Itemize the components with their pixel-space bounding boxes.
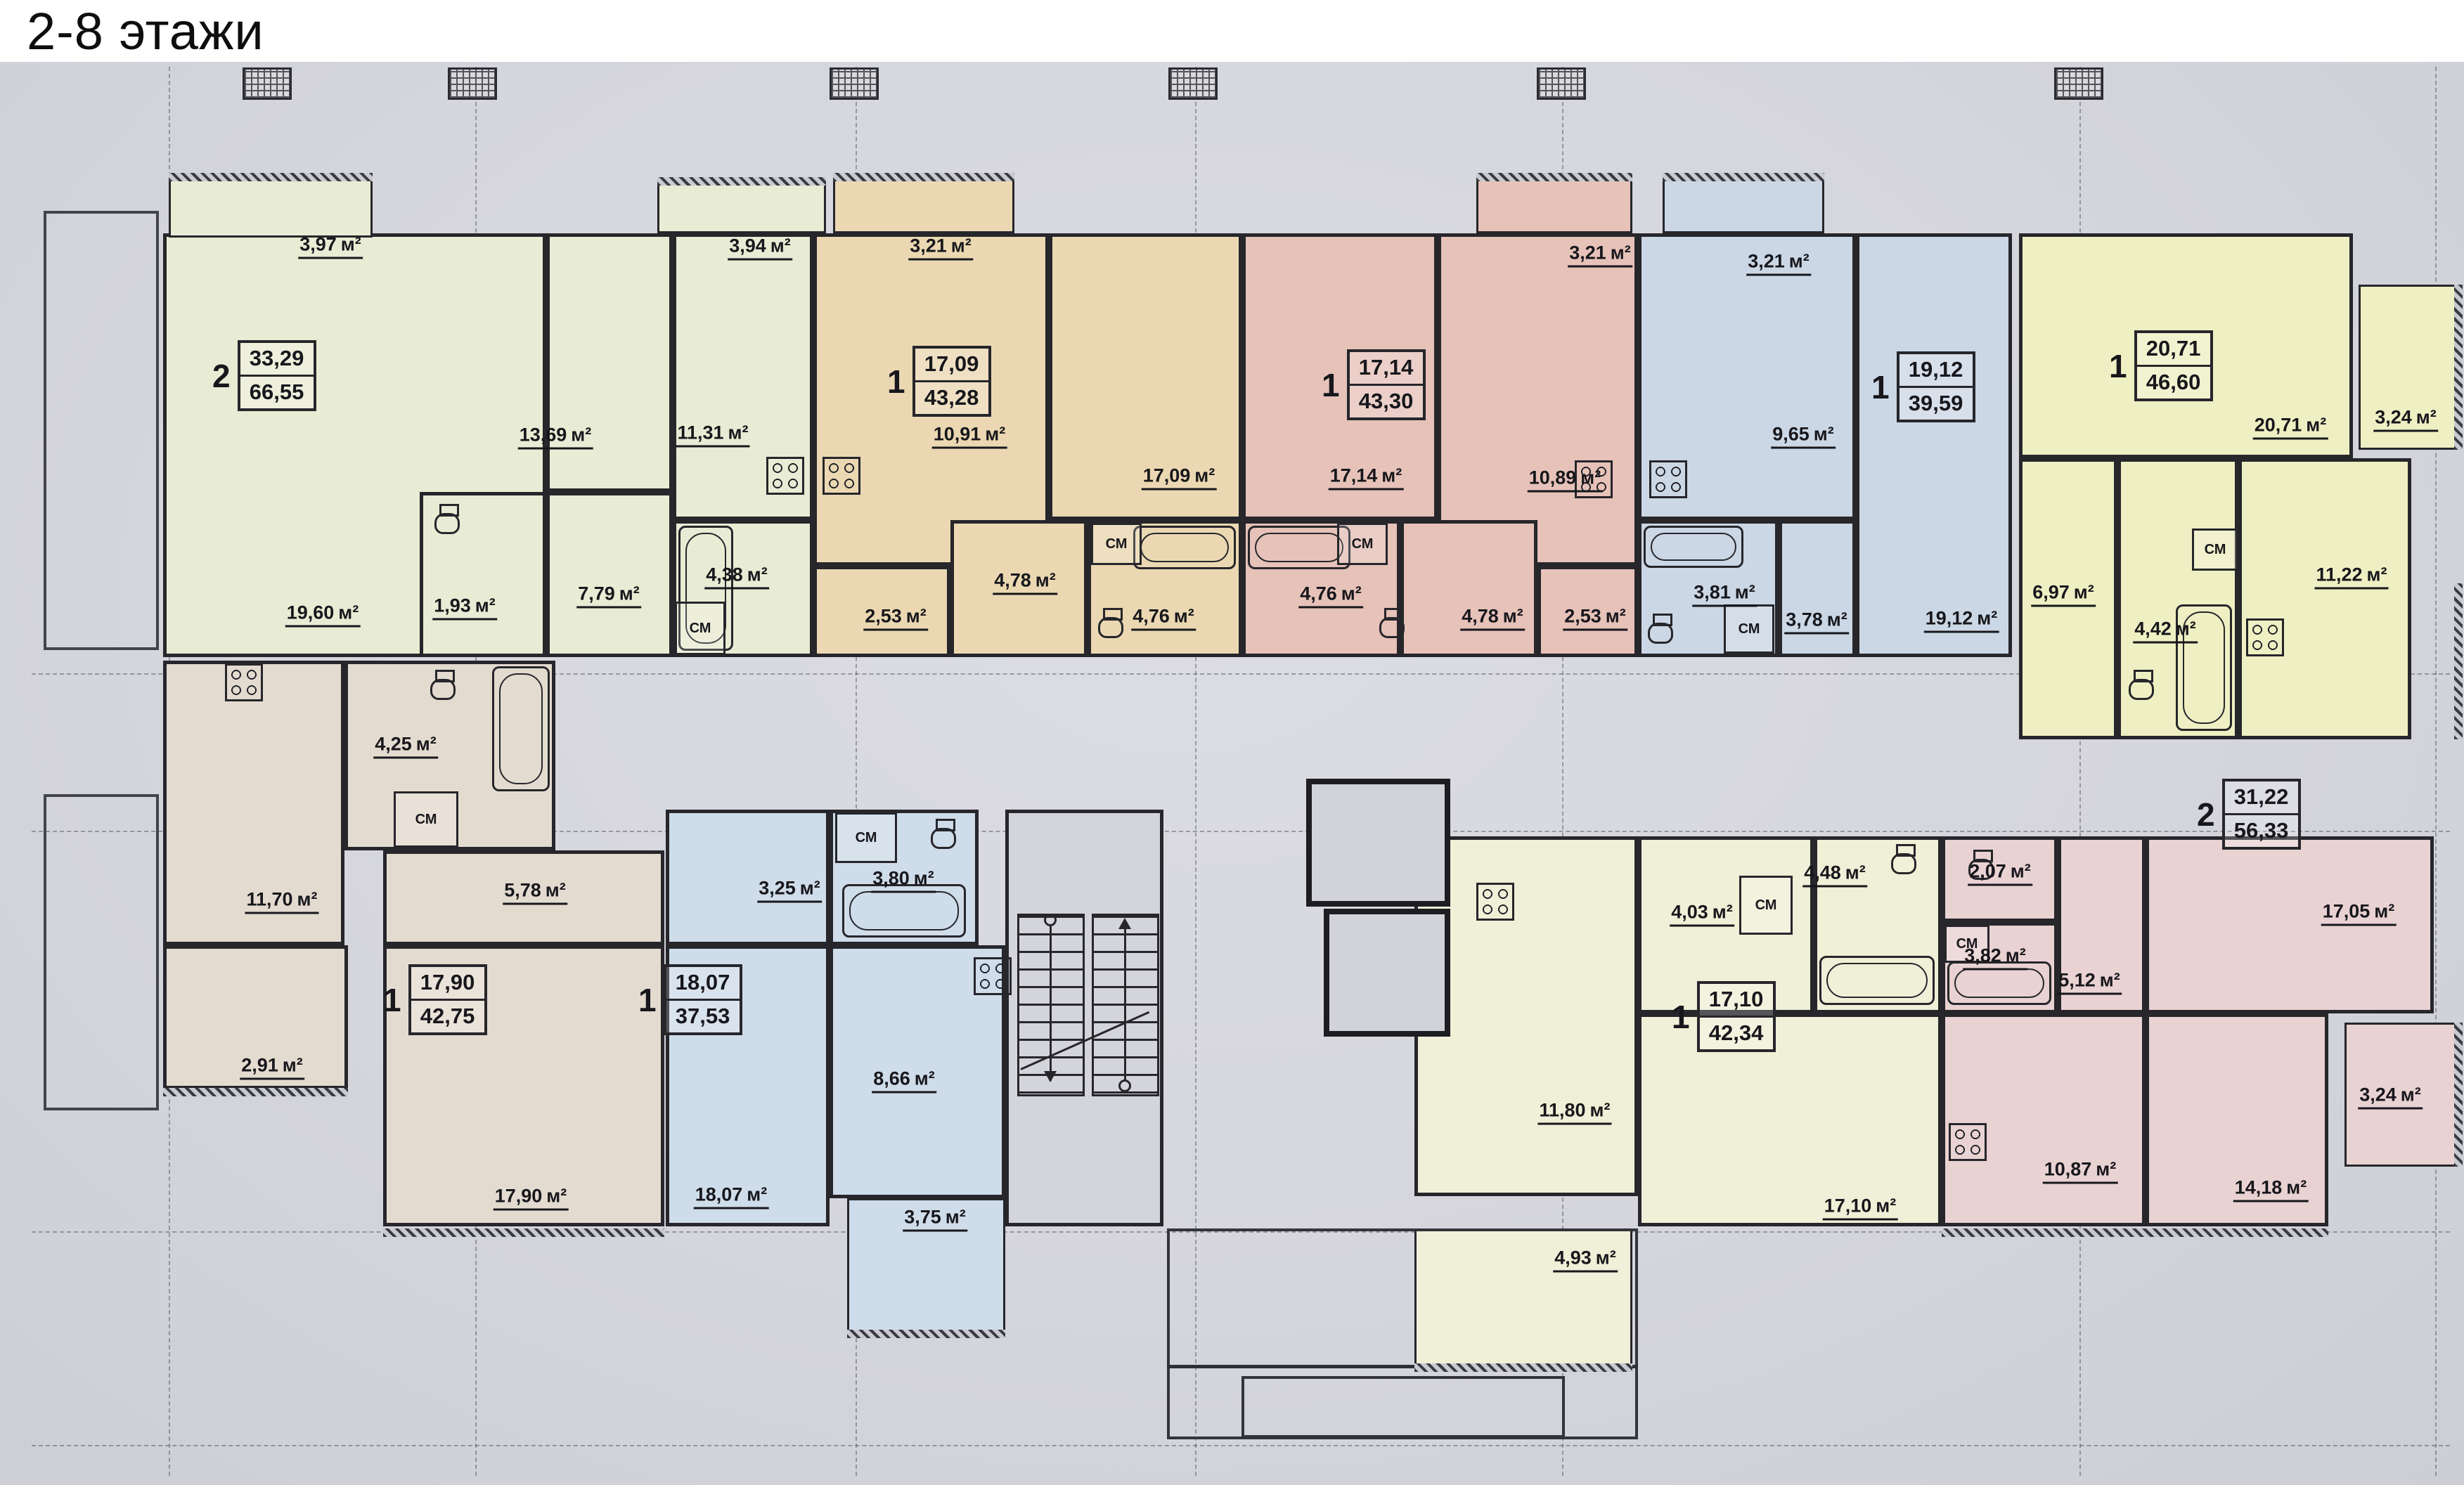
bottom-sill-hatch: [163, 1088, 348, 1096]
area-label: 13,69м²: [518, 424, 593, 446]
area-label: 8,66м²: [872, 1068, 936, 1090]
area-label: 1,93м²: [432, 595, 497, 617]
area-label: 3,97м²: [298, 234, 363, 256]
toilet-icon: [1098, 617, 1123, 638]
area-label: 3,78м²: [1784, 609, 1849, 631]
apartment-info: 2 33,2966,55: [212, 340, 316, 411]
apt1-bedroom: [546, 233, 673, 492]
area-label: 6,97м²: [2031, 582, 2096, 604]
area-label: 3,80м²: [871, 868, 936, 890]
apt3-hallway: [1400, 520, 1537, 657]
area-label: 17,05м²: [2321, 901, 2397, 923]
apt1-balcony-2: [657, 180, 826, 233]
toilet-icon: [1379, 617, 1405, 638]
vent-shaft-icon: [1168, 67, 1218, 100]
area-label: 5,78м²: [503, 880, 567, 902]
stove-icon: [2246, 618, 2284, 656]
apt3-balcony: [1476, 176, 1632, 233]
bathtub-icon: [1248, 526, 1350, 569]
area-label: 4,93м²: [1553, 1247, 1618, 1269]
apt3-kitchen: [1438, 233, 1638, 566]
toilet-icon: [1648, 623, 1673, 644]
area-label: 19,60м²: [285, 602, 361, 624]
toilet-icon: [434, 513, 460, 534]
axis-line: [2435, 67, 2437, 1476]
closet-box: СМ: [1091, 523, 1142, 565]
apartment-info: 1 17,0943,28: [887, 346, 991, 417]
apt5-kitchen: [2238, 458, 2411, 739]
stove-icon: [823, 457, 860, 495]
area-label: 4,76м²: [1131, 606, 1196, 628]
stove-icon: [1649, 460, 1687, 498]
area-label: 3,82м²: [1963, 945, 2027, 967]
vent-shaft-icon: [830, 67, 879, 100]
right-wall-hatch: [2454, 285, 2463, 450]
area-label: 3,81м²: [1692, 582, 1757, 604]
apt4-hallway: [1779, 520, 1856, 657]
area-label: 4,78м²: [993, 570, 1057, 592]
area-label: 2,53м²: [863, 606, 928, 628]
bottom-sill-hatch: [383, 1228, 664, 1237]
area-label: 4,25м²: [373, 734, 438, 756]
axis-line: [32, 1445, 2450, 1446]
toilet-icon: [430, 679, 456, 700]
closet-box: СМ: [1337, 523, 1388, 565]
toilet-icon: [1891, 853, 1916, 874]
stair-arrow-up-icon: [1118, 918, 1131, 929]
area-label: 18,07м²: [694, 1184, 769, 1206]
bottom-sill-hatch: [847, 1330, 1005, 1338]
elevator-shaft: [1324, 909, 1450, 1037]
area-label: 11,70м²: [245, 889, 318, 911]
area-label: 11,31м²: [676, 422, 749, 444]
vent-shaft-icon: [448, 67, 497, 100]
apartment-info: 1 20,7146,60: [2109, 330, 2213, 401]
area-label: 10,87м²: [2043, 1159, 2118, 1181]
bathtub-icon: [1133, 526, 1236, 569]
apt1-balcony: [169, 176, 373, 238]
area-label: 7,79м²: [576, 583, 641, 605]
closet-box: СМ: [835, 812, 897, 863]
closet-box: СМ: [675, 602, 725, 655]
stove-icon: [974, 957, 1012, 995]
area-label: 17,10м²: [1823, 1195, 1898, 1217]
stair-arrow-line: [1124, 926, 1126, 1081]
closet-box: СМ: [394, 791, 458, 848]
bathtub-icon: [1819, 956, 1935, 1005]
bottom-sill-hatch: [1942, 1228, 2328, 1237]
area-label: 4,48м²: [1802, 862, 1867, 884]
balcony-wall-hatch: [833, 173, 1014, 181]
area-label: 2,07м²: [1968, 861, 2032, 883]
area-label: 11,22м²: [2314, 564, 2388, 586]
stove-icon: [1476, 883, 1514, 921]
balcony-wall-hatch: [169, 173, 373, 181]
area-label: 17,09м²: [1142, 465, 1217, 487]
area-label: 20,71м²: [2253, 415, 2328, 436]
stair-arrow-down-icon: [1044, 1071, 1057, 1082]
balcony-wall-hatch: [1663, 173, 1824, 181]
right-wall-hatch: [2454, 1023, 2463, 1167]
stove-icon: [766, 457, 804, 495]
area-label: 3,21м²: [908, 235, 973, 257]
toilet-icon: [931, 828, 956, 849]
area-label: 5,12м²: [2057, 970, 2122, 992]
closet-box: СМ: [1739, 876, 1793, 935]
stove-icon: [225, 663, 263, 701]
left-section-wall: [44, 211, 159, 650]
apt4-balcony: [1663, 176, 1824, 233]
apt2-balcony: [833, 176, 1014, 233]
area-label: 17,90м²: [494, 1186, 569, 1207]
stair-rail-end: [1118, 1079, 1131, 1092]
balcony-wall-hatch: [657, 177, 826, 186]
bathtub-icon: [1644, 526, 1743, 568]
apartment-info: 1 17,1042,34: [1672, 981, 1776, 1052]
area-label: 2,53м²: [1563, 606, 1627, 628]
area-label: 10,89м²: [1528, 467, 1603, 489]
left-section-wall: [44, 794, 159, 1110]
area-label: 11,80м²: [1537, 1100, 1611, 1122]
entrance-porch: [1241, 1376, 1565, 1438]
area-label: 2,91м²: [240, 1055, 304, 1077]
area-label: 17,14м²: [1329, 465, 1404, 487]
vent-shaft-icon: [2054, 67, 2103, 100]
area-label: 19,12м²: [1924, 608, 1999, 630]
balcony-wall-hatch: [1476, 173, 1632, 181]
toilet-icon: [2129, 679, 2154, 700]
area-label: 3,25м²: [757, 878, 822, 900]
area-label: 4,78м²: [1460, 606, 1525, 628]
area-label: 10,91м²: [932, 424, 1007, 446]
area-label: 3,21м²: [1746, 251, 1811, 273]
closet-box: СМ: [2192, 528, 2238, 571]
area-label: 4,76м²: [1298, 583, 1363, 605]
right-wall-hatch: [2454, 583, 2463, 739]
elevator-shaft: [1306, 779, 1450, 907]
page-title: 2-8 этажи: [27, 1, 264, 61]
area-label: 3,24м²: [2373, 407, 2438, 429]
vent-shaft-icon: [1537, 67, 1586, 100]
bottom-sill-hatch: [1414, 1363, 1632, 1372]
stair-arrow-line: [1050, 926, 1052, 1081]
bathtub-icon: [492, 666, 550, 791]
area-label: 4,38м²: [704, 564, 769, 586]
area-label: 3,75м²: [903, 1207, 967, 1228]
area-label: 4,42м²: [2133, 618, 2198, 640]
apartment-info: 1 17,9042,75: [383, 964, 487, 1035]
apt1-hallway: [546, 492, 673, 657]
area-label: 3,24м²: [2358, 1084, 2423, 1106]
apartment-info: 1 17,1443,30: [1322, 349, 1426, 420]
apartment-info: 1 19,1239,59: [1871, 351, 1975, 422]
floor-plan-page: 2-8 этажи: [0, 0, 2464, 1485]
area-label: 3,21м²: [1568, 242, 1632, 264]
apt6-kitchen: [1942, 1013, 2146, 1226]
apartment-info: 1 18,0737,53: [638, 964, 742, 1035]
vent-shaft-icon: [243, 67, 292, 100]
stair-rail-start: [1044, 914, 1057, 926]
apartment-info: 2 31,2256,33: [2197, 779, 2301, 850]
stove-icon: [1949, 1123, 1987, 1161]
apt4-living-room: [1856, 233, 2012, 657]
area-label: 9,65м²: [1771, 424, 1836, 446]
closet-box: СМ: [1724, 604, 1774, 654]
area-label: 3,94м²: [728, 235, 792, 257]
area-label: 4,03м²: [1670, 902, 1734, 923]
area-label: 14,18м²: [2233, 1177, 2309, 1199]
